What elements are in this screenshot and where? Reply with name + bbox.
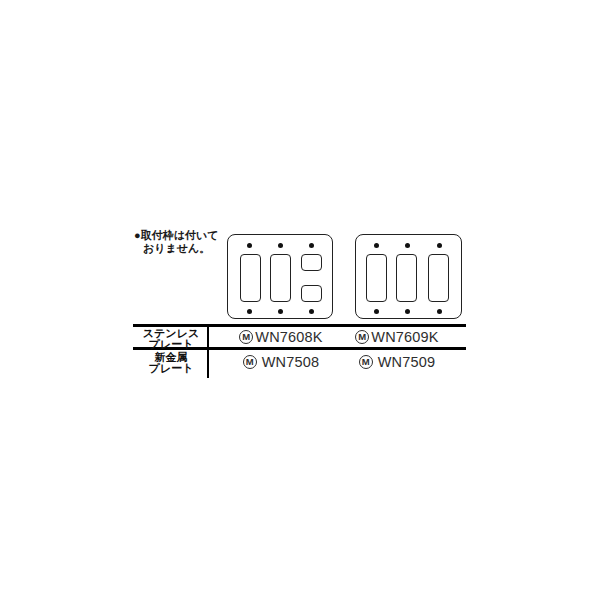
screw-hole-dot: [309, 309, 314, 314]
circled-m-icon: M: [359, 355, 373, 369]
screw-hole-dot: [405, 243, 410, 248]
table-divider-vertical: [207, 324, 209, 378]
screw-hole-dot: [374, 243, 379, 248]
circled-m-icon: M: [355, 330, 369, 344]
screw-hole-dot: [247, 309, 252, 314]
plate-diagram-left: [227, 234, 333, 319]
model-number: WN7508: [262, 354, 320, 370]
note-line-1: ●取付枠は付いて: [134, 229, 218, 242]
screw-hole-dot: [278, 309, 283, 314]
model-cell-wn7509: M WN7509: [326, 351, 468, 373]
row-label-line-2: プレート: [136, 339, 206, 350]
screw-hole-dot: [247, 243, 252, 248]
screw-hole-dot: [309, 243, 314, 248]
screw-hole-dot: [437, 243, 442, 248]
note-mounting-frame: ●取付枠は付いて おりません。: [134, 229, 218, 254]
screw-hole-dot: [374, 309, 379, 314]
note-line-2: おりません。: [143, 242, 218, 255]
model-number: WN7509: [378, 354, 436, 370]
row-label-line-1: 新金属: [136, 352, 206, 363]
switch-opening-large: [240, 254, 261, 302]
plate-diagram-right: [355, 234, 462, 319]
switch-opening-small: [301, 285, 322, 302]
screw-hole-dot: [405, 309, 410, 314]
row-label-new-metal-plate: 新金属 プレート: [136, 352, 206, 373]
row-label-line-1: ステンレス: [136, 328, 206, 339]
switch-opening-large: [428, 254, 449, 302]
circled-m-icon: M: [243, 355, 257, 369]
switch-opening-large: [270, 254, 291, 302]
switch-opening-small: [301, 254, 322, 271]
model-number: WN7609K: [371, 329, 439, 345]
circled-m-icon: M: [239, 330, 253, 344]
model-number: WN7608K: [255, 329, 323, 345]
switch-opening-large: [396, 254, 417, 302]
model-cell-wn7609k: M WN7609K: [326, 327, 468, 347]
screw-hole-dot: [437, 309, 442, 314]
row-label-stainless-plate: ステンレス プレート: [136, 328, 206, 349]
row-label-line-2: プレート: [136, 363, 206, 374]
catalog-page: ●取付枠は付いて おりません。 ステンレス プレート M WN7608K: [0, 0, 600, 600]
switch-opening-large: [366, 254, 387, 302]
screw-hole-dot: [278, 243, 283, 248]
